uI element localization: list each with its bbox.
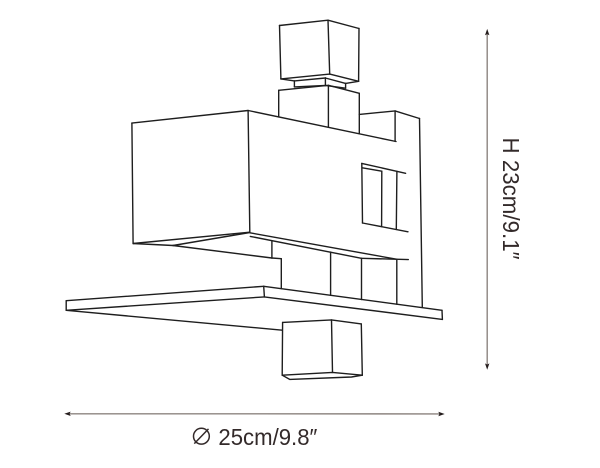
svg-text:25cm/9.8″: 25cm/9.8″ xyxy=(218,424,317,450)
svg-text:H 23cm/9.1″: H 23cm/9.1″ xyxy=(498,138,524,260)
